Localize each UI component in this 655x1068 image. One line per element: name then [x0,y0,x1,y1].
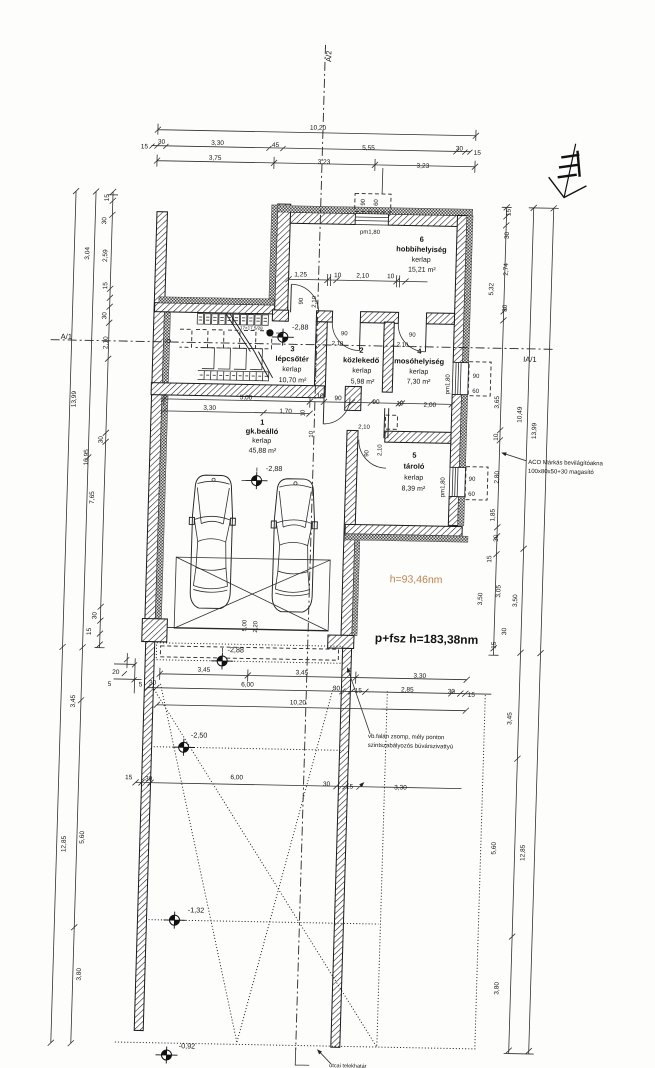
svg-text:-1,32: -1,32 [188,905,205,914]
svg-text:12,85: 12,85 [60,835,67,852]
svg-text:10: 10 [316,393,324,400]
svg-text:vb.falán zsomp, mély ponton: vb.falán zsomp, mély ponton [368,734,445,741]
svg-text:ACO Márkás bevilágítóakna: ACO Márkás bevilágítóakna [528,460,604,467]
svg-text:30: 30 [98,436,105,444]
svg-text:15: 15 [474,150,482,157]
svg-text:2,85: 2,85 [401,686,414,693]
svg-text:45,88 m²: 45,88 m² [249,447,277,455]
svg-text:5,98 m²: 5,98 m² [351,378,376,385]
svg-text:15: 15 [491,641,498,649]
svg-text:utcai telekhatár: utcai telekhatár [329,1063,367,1068]
svg-text:15: 15 [125,774,133,781]
svg-text:30: 30 [158,139,166,146]
svg-text:lépcsőtér: lépcsőtér [275,354,309,364]
svg-text:2,20: 2,20 [253,620,259,632]
svg-text:3,80: 3,80 [493,982,500,995]
svg-text:15: 15 [141,143,149,150]
svg-text:15: 15 [86,627,93,635]
svg-text:90: 90 [361,198,367,205]
svg-text:100x80x50+30 magasító: 100x80x50+30 magasító [528,469,595,476]
svg-text:15: 15 [468,692,476,699]
svg-text:2,59: 2,59 [102,249,109,262]
svg-text:10: 10 [387,273,395,280]
svg-text:3,05: 3,05 [495,585,502,598]
svg-text:15,21 m²: 15,21 m² [408,267,436,275]
svg-text:hobbihelyiség: hobbihelyiség [396,244,447,254]
svg-text:2,10: 2,10 [377,444,383,456]
svg-text:90: 90 [364,449,370,456]
svg-text:-2,50: -2,50 [191,730,208,739]
svg-text:3,04: 3,04 [84,247,91,260]
svg-text:2,10: 2,10 [358,425,371,431]
svg-text:10,70 m²: 10,70 m² [279,377,307,385]
svg-text:3,65: 3,65 [494,395,501,408]
svg-text:90: 90 [341,331,349,337]
svg-text:kerlap: kerlap [352,367,371,374]
svg-text:45: 45 [272,142,280,149]
svg-text:-2,88: -2,88 [227,645,244,654]
svg-text:A/2: A/2 [324,51,333,62]
svg-text:90: 90 [299,297,305,304]
svg-text:-0,92: -0,92 [179,1041,196,1050]
svg-text:30: 30 [101,312,108,320]
svg-text:30: 30 [323,781,331,788]
svg-text:-2,88: -2,88 [266,464,283,473]
svg-text:30: 30 [493,534,500,542]
svg-text:5: 5 [412,451,416,460]
svg-text:13,99: 13,99 [531,422,538,439]
svg-text:17×17,5/28: 17×17,5/28 [240,325,263,330]
svg-text:gk.beálló: gk.beálló [246,426,279,436]
svg-text:60: 60 [468,492,476,498]
svg-text:5,00: 5,00 [242,619,248,631]
svg-text:3,75: 3,75 [209,155,222,162]
svg-text:13,99: 13,99 [71,391,78,408]
svg-text:90: 90 [469,477,477,483]
svg-text:10: 10 [493,433,500,441]
svg-text:20: 20 [112,669,120,676]
svg-text:pm1,80: pm1,80 [360,230,381,236]
svg-text:tároló: tároló [403,461,425,470]
svg-text:2,10: 2,10 [356,273,369,280]
svg-text:10,95: 10,95 [83,449,90,466]
svg-text:30: 30 [502,304,509,312]
svg-text:90: 90 [409,333,417,339]
svg-text:10: 10 [396,400,404,407]
svg-text:1,25: 1,25 [294,271,307,278]
svg-text:30: 30 [501,627,508,635]
svg-text:7,65: 7,65 [89,491,96,504]
svg-text:kerlap: kerlap [252,438,271,445]
svg-text:15: 15 [346,783,354,790]
svg-text:-2,88: -2,88 [292,322,309,331]
svg-text:10: 10 [334,272,342,279]
svg-text:12,85: 12,85 [519,844,526,861]
svg-text:3,23: 3,23 [417,163,430,170]
svg-text:6,00: 6,00 [241,681,254,688]
svg-text:5,00: 5,00 [240,394,253,401]
svg-text:3,23: 3,23 [318,159,331,166]
svg-text:3: 3 [290,344,294,353]
svg-text:3,30: 3,30 [413,673,426,680]
svg-text:90: 90 [334,395,342,402]
svg-text:szintszabályozós búvárszivatty: szintszabályozós búvárszivattyú [368,743,454,751]
svg-text:kerlap: kerlap [409,369,428,376]
svg-text:8,39 m²: 8,39 m² [401,485,426,492]
svg-text:3,50: 3,50 [512,594,519,607]
svg-text:30: 30 [333,685,341,692]
svg-text:2,10: 2,10 [102,336,109,349]
svg-text:IA/1: IA/1 [523,355,537,364]
svg-text:3,30: 3,30 [203,405,216,412]
svg-text:3,30: 3,30 [394,784,407,791]
svg-text:30: 30 [448,688,456,695]
svg-text:2,80: 2,80 [494,470,501,483]
svg-text:5: 5 [139,681,143,688]
svg-text:30: 30 [145,776,153,783]
svg-text:5,32: 5,32 [488,282,495,295]
svg-text:6,00: 6,00 [230,774,243,781]
svg-text:3,80: 3,80 [76,968,83,981]
svg-text:10,20: 10,20 [290,699,307,706]
svg-text:p+fsz h=183,38nm: p+fsz h=183,38nm [375,631,479,647]
svg-text:mosóhelyiség: mosóhelyiség [394,356,445,366]
svg-text:2,10: 2,10 [312,295,318,307]
svg-text:3,45: 3,45 [506,712,513,725]
svg-text:15: 15 [486,555,493,563]
svg-text:5,60: 5,60 [491,841,498,854]
svg-text:90: 90 [473,374,481,380]
svg-text:10: 10 [300,409,306,416]
svg-text:3,45: 3,45 [197,667,210,674]
svg-text:1,85: 1,85 [489,508,496,521]
svg-text:h=93,46nm: h=93,46nm [390,573,443,586]
svg-text:1: 1 [260,418,264,427]
svg-text:2,10: 2,10 [332,341,345,347]
svg-text:kerlap: kerlap [412,257,431,264]
svg-text:3,45: 3,45 [70,694,77,707]
svg-text:A/1: A/1 [61,332,73,341]
svg-text:60: 60 [374,199,380,206]
svg-text:3,30: 3,30 [211,140,224,147]
svg-text:2,10: 2,10 [397,342,410,348]
svg-text:60: 60 [472,389,480,395]
svg-text:3,50: 3,50 [477,592,484,605]
svg-text:10,20: 10,20 [310,125,327,132]
svg-text:közlekedő: közlekedő [343,355,380,365]
svg-text:pm1,80: pm1,80 [445,374,452,395]
svg-text:1,70: 1,70 [279,408,292,415]
svg-text:15: 15 [102,282,109,290]
svg-text:5: 5 [108,681,112,688]
svg-text:90: 90 [372,399,380,406]
svg-text:30: 30 [504,231,511,239]
svg-text:10: 10 [309,430,315,437]
svg-text:10,49: 10,49 [516,406,523,423]
svg-text:2,00: 2,00 [423,402,436,409]
svg-text:pm1,80: pm1,80 [440,476,447,497]
svg-text:30: 30 [456,145,464,152]
svg-text:15: 15 [506,208,513,216]
svg-text:5,60: 5,60 [79,831,86,844]
svg-text:7,30 m²: 7,30 m² [407,379,432,386]
svg-text:2,74: 2,74 [503,263,510,276]
svg-text:kerlap: kerlap [282,366,301,373]
svg-text:3,45: 3,45 [295,669,308,676]
svg-text:5,55: 5,55 [362,145,375,152]
svg-text:kerlap: kerlap [404,474,423,481]
svg-text:30: 30 [149,680,157,687]
svg-text:30: 30 [101,217,108,225]
svg-text:6: 6 [420,235,424,244]
svg-text:30: 30 [91,611,98,619]
svg-text:15: 15 [355,688,363,695]
svg-text:15: 15 [104,194,111,202]
